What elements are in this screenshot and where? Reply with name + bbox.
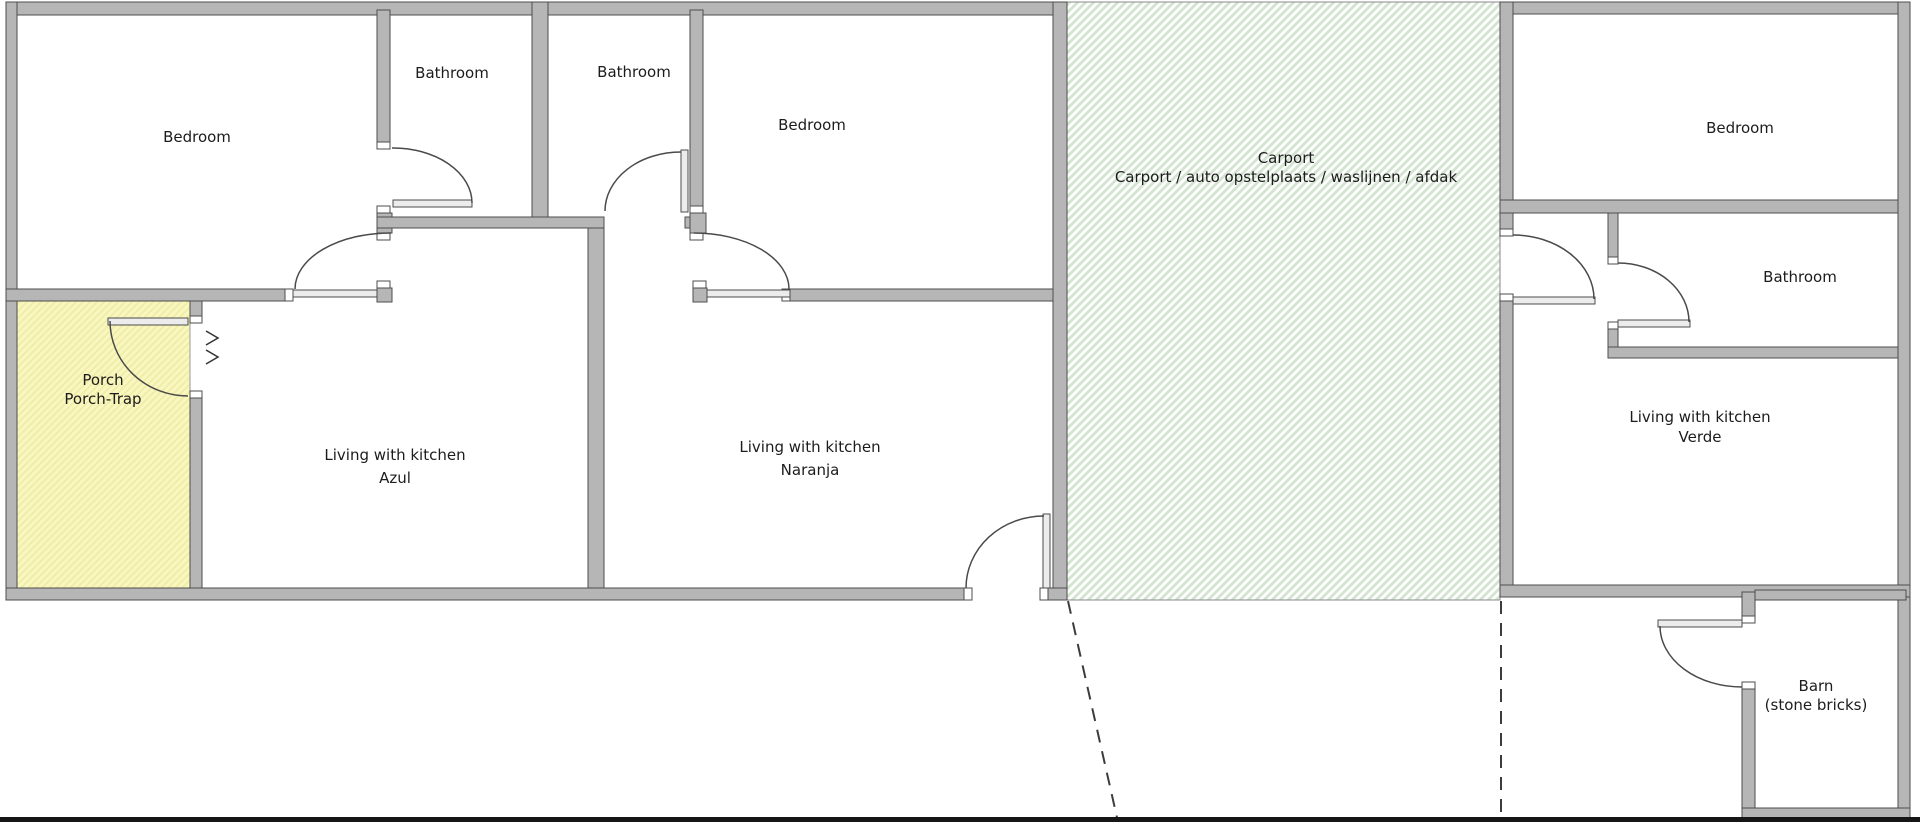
jamb <box>1040 588 1048 600</box>
wall-middle-right <box>1053 2 1067 600</box>
wall-right-exterior <box>1898 2 1910 820</box>
jamb <box>964 588 972 600</box>
dashed-line-slanted <box>1068 601 1118 822</box>
chevron-right-icon <box>206 331 218 345</box>
room-label-bathroom1: Bathroom <box>415 64 489 82</box>
jamb <box>1742 616 1755 623</box>
room-label-naranja-line2: Naranja <box>781 461 840 479</box>
door-leaf-verde-entry <box>1513 297 1595 304</box>
wall-bathrooms-bottom <box>377 217 604 228</box>
jamb <box>690 206 703 213</box>
carport-area <box>1067 2 1500 600</box>
jamb <box>190 391 202 398</box>
room-label-carport-line1: Carport <box>1258 149 1315 167</box>
wall-between-buildings <box>532 2 548 228</box>
door-leaf-barn <box>1658 620 1742 627</box>
room-label-azul-line2: Azul <box>379 469 411 487</box>
door-leaf-bathroom1 <box>393 200 472 207</box>
wall-living-divider <box>588 217 604 600</box>
jamb <box>693 281 706 288</box>
wall-barn-left-lower <box>1742 688 1755 822</box>
door-leaf-bathroom3 <box>1618 320 1690 327</box>
wall-corner2 <box>690 213 706 233</box>
room-labels: Bedroom Bathroom Bathroom Bedroom Porch … <box>64 63 1867 714</box>
door-leaf-naranja-exit <box>1043 514 1050 588</box>
image-bottom-border <box>0 817 1920 822</box>
door-arc-naranja-exit <box>966 516 1044 588</box>
door-leaf-bathroom2 <box>681 150 688 212</box>
jamb <box>1608 257 1618 264</box>
room-label-porch-line1: Porch <box>82 371 123 389</box>
porch-floor <box>17 301 190 588</box>
wall-bottom-a <box>6 588 972 600</box>
wall-bottom-b <box>1048 588 1067 600</box>
jamb <box>1500 229 1513 236</box>
chevron-right-icon <box>206 350 218 364</box>
door-arc-bathroom1 <box>392 148 472 203</box>
room-label-verde-line2: Verde <box>1679 428 1722 446</box>
jamb <box>1742 682 1755 689</box>
wall-bed3-bottom <box>1500 200 1898 213</box>
door-arc-bathroom3 <box>1618 263 1689 322</box>
room-label-barn-line1: Barn <box>1799 677 1834 695</box>
room-label-barn-line2: (stone bricks) <box>1765 696 1868 714</box>
room-label-carport-line2: Carport / auto opstelplaats / waslijnen … <box>1115 168 1458 186</box>
room-label-naranja-line1: Living with kitchen <box>739 438 880 456</box>
door-arc-verde-entry <box>1513 235 1594 299</box>
jamb <box>377 206 390 213</box>
wall-bed2-bottom <box>790 289 1053 301</box>
wall-rightbldg-left-lower <box>1500 300 1513 597</box>
wall-bed1-bottom <box>6 289 293 301</box>
wall-bed1-bottom-corner <box>377 288 392 302</box>
jamb <box>1500 294 1513 301</box>
boundary-lines <box>1068 601 1501 822</box>
room-label-bedroom1: Bedroom <box>163 128 231 146</box>
door-arc-bathroom2 <box>605 152 681 211</box>
door-leaf-bedroom1 <box>293 290 377 297</box>
wall-bed1-bath1 <box>377 10 390 148</box>
room-label-verde-line1: Living with kitchen <box>1629 408 1770 426</box>
room-label-azul-line1: Living with kitchen <box>324 446 465 464</box>
jamb <box>690 233 703 240</box>
porch-trap-chevrons-icon <box>206 331 218 364</box>
room-label-bathroom3: Bathroom <box>1763 268 1837 286</box>
room-label-porch-line2: Porch-Trap <box>64 390 141 408</box>
room-label-bathroom2: Bathroom <box>597 63 671 81</box>
wall-porch-right-lower <box>190 397 202 588</box>
room-label-bedroom3: Bedroom <box>1706 119 1774 137</box>
floor-plan-svg: Bedroom Bathroom Bathroom Bedroom Porch … <box>0 0 1920 822</box>
wall-top-right <box>1500 2 1910 14</box>
jamb <box>190 316 202 323</box>
walls <box>6 2 1910 822</box>
wall-bath2-bed2 <box>690 10 703 213</box>
jamb <box>377 142 390 149</box>
door-leaf-bedroom2 <box>707 290 790 297</box>
wall-bath3-bottom <box>1608 347 1898 358</box>
wall-barn-top <box>1755 590 1906 600</box>
jamb <box>377 281 390 288</box>
door-arc-bedroom2 <box>694 233 789 289</box>
floor-plan-canvas: Bedroom Bathroom Bathroom Bedroom Porch … <box>0 0 1920 822</box>
wall-bed2-bottom-corner <box>693 288 707 302</box>
jamb <box>285 289 293 301</box>
wall-hall-divider-upper <box>1608 213 1618 263</box>
jamb <box>1608 322 1618 329</box>
door-leaf-porch <box>108 318 188 325</box>
door-arc-barn <box>1660 626 1742 687</box>
room-label-bedroom2: Bedroom <box>778 116 846 134</box>
